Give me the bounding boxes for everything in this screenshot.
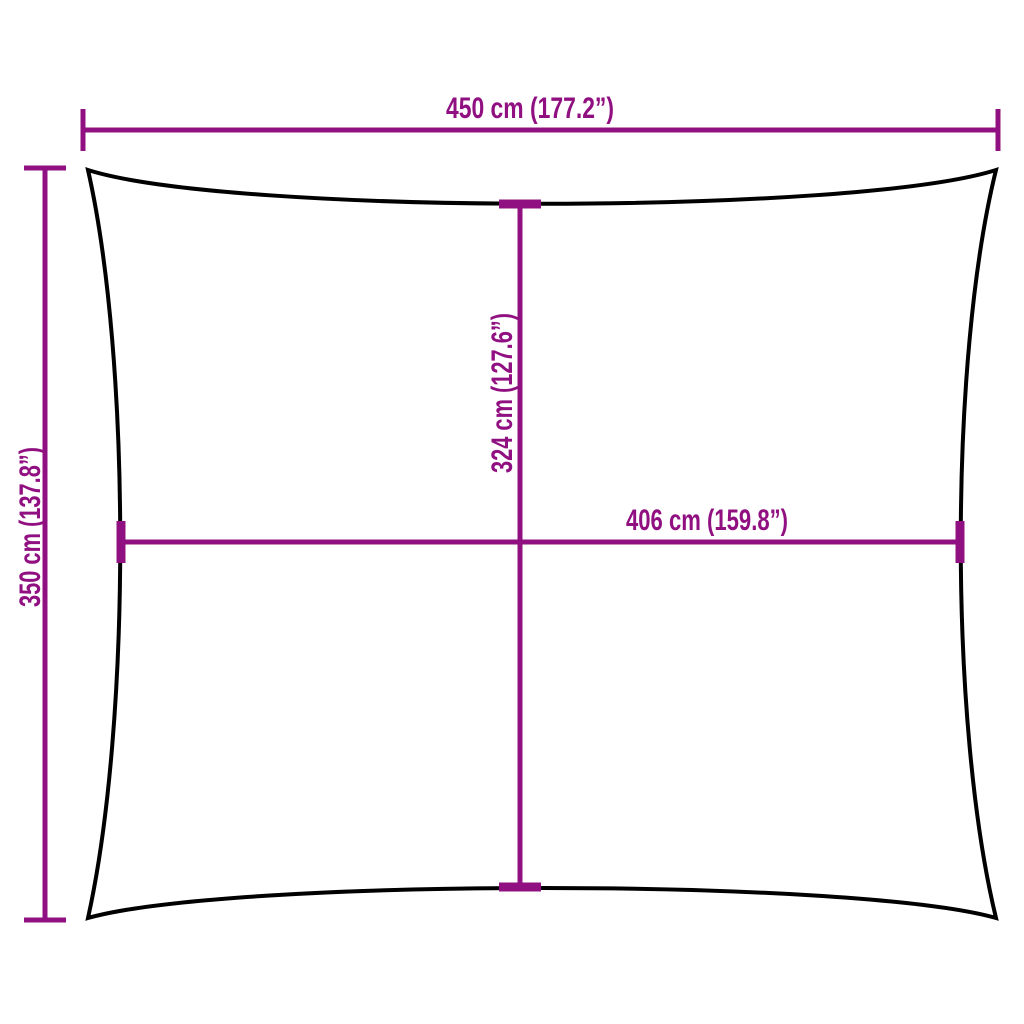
inner-width-dimension: 406 cm (159.8”) — [121, 504, 960, 563]
top-width-label: 450 cm (177.2”) — [446, 92, 614, 125]
left-height-dimension: 350 cm (137.8”) — [14, 168, 66, 920]
inner-width-label: 406 cm (159.8”) — [626, 504, 788, 537]
inner-height-label: 324 cm (127.6”) — [486, 313, 519, 473]
inner-height-dimension: 324 cm (127.6”) — [486, 203, 541, 888]
left-height-label: 350 cm (137.8”) — [14, 447, 47, 607]
diagram-canvas: 450 cm (177.2”) 350 cm (137.8”) 324 cm (… — [0, 0, 1024, 1024]
top-width-dimension: 450 cm (177.2”) — [83, 92, 998, 151]
dimension-diagram-svg: 450 cm (177.2”) 350 cm (137.8”) 324 cm (… — [0, 0, 1024, 1024]
